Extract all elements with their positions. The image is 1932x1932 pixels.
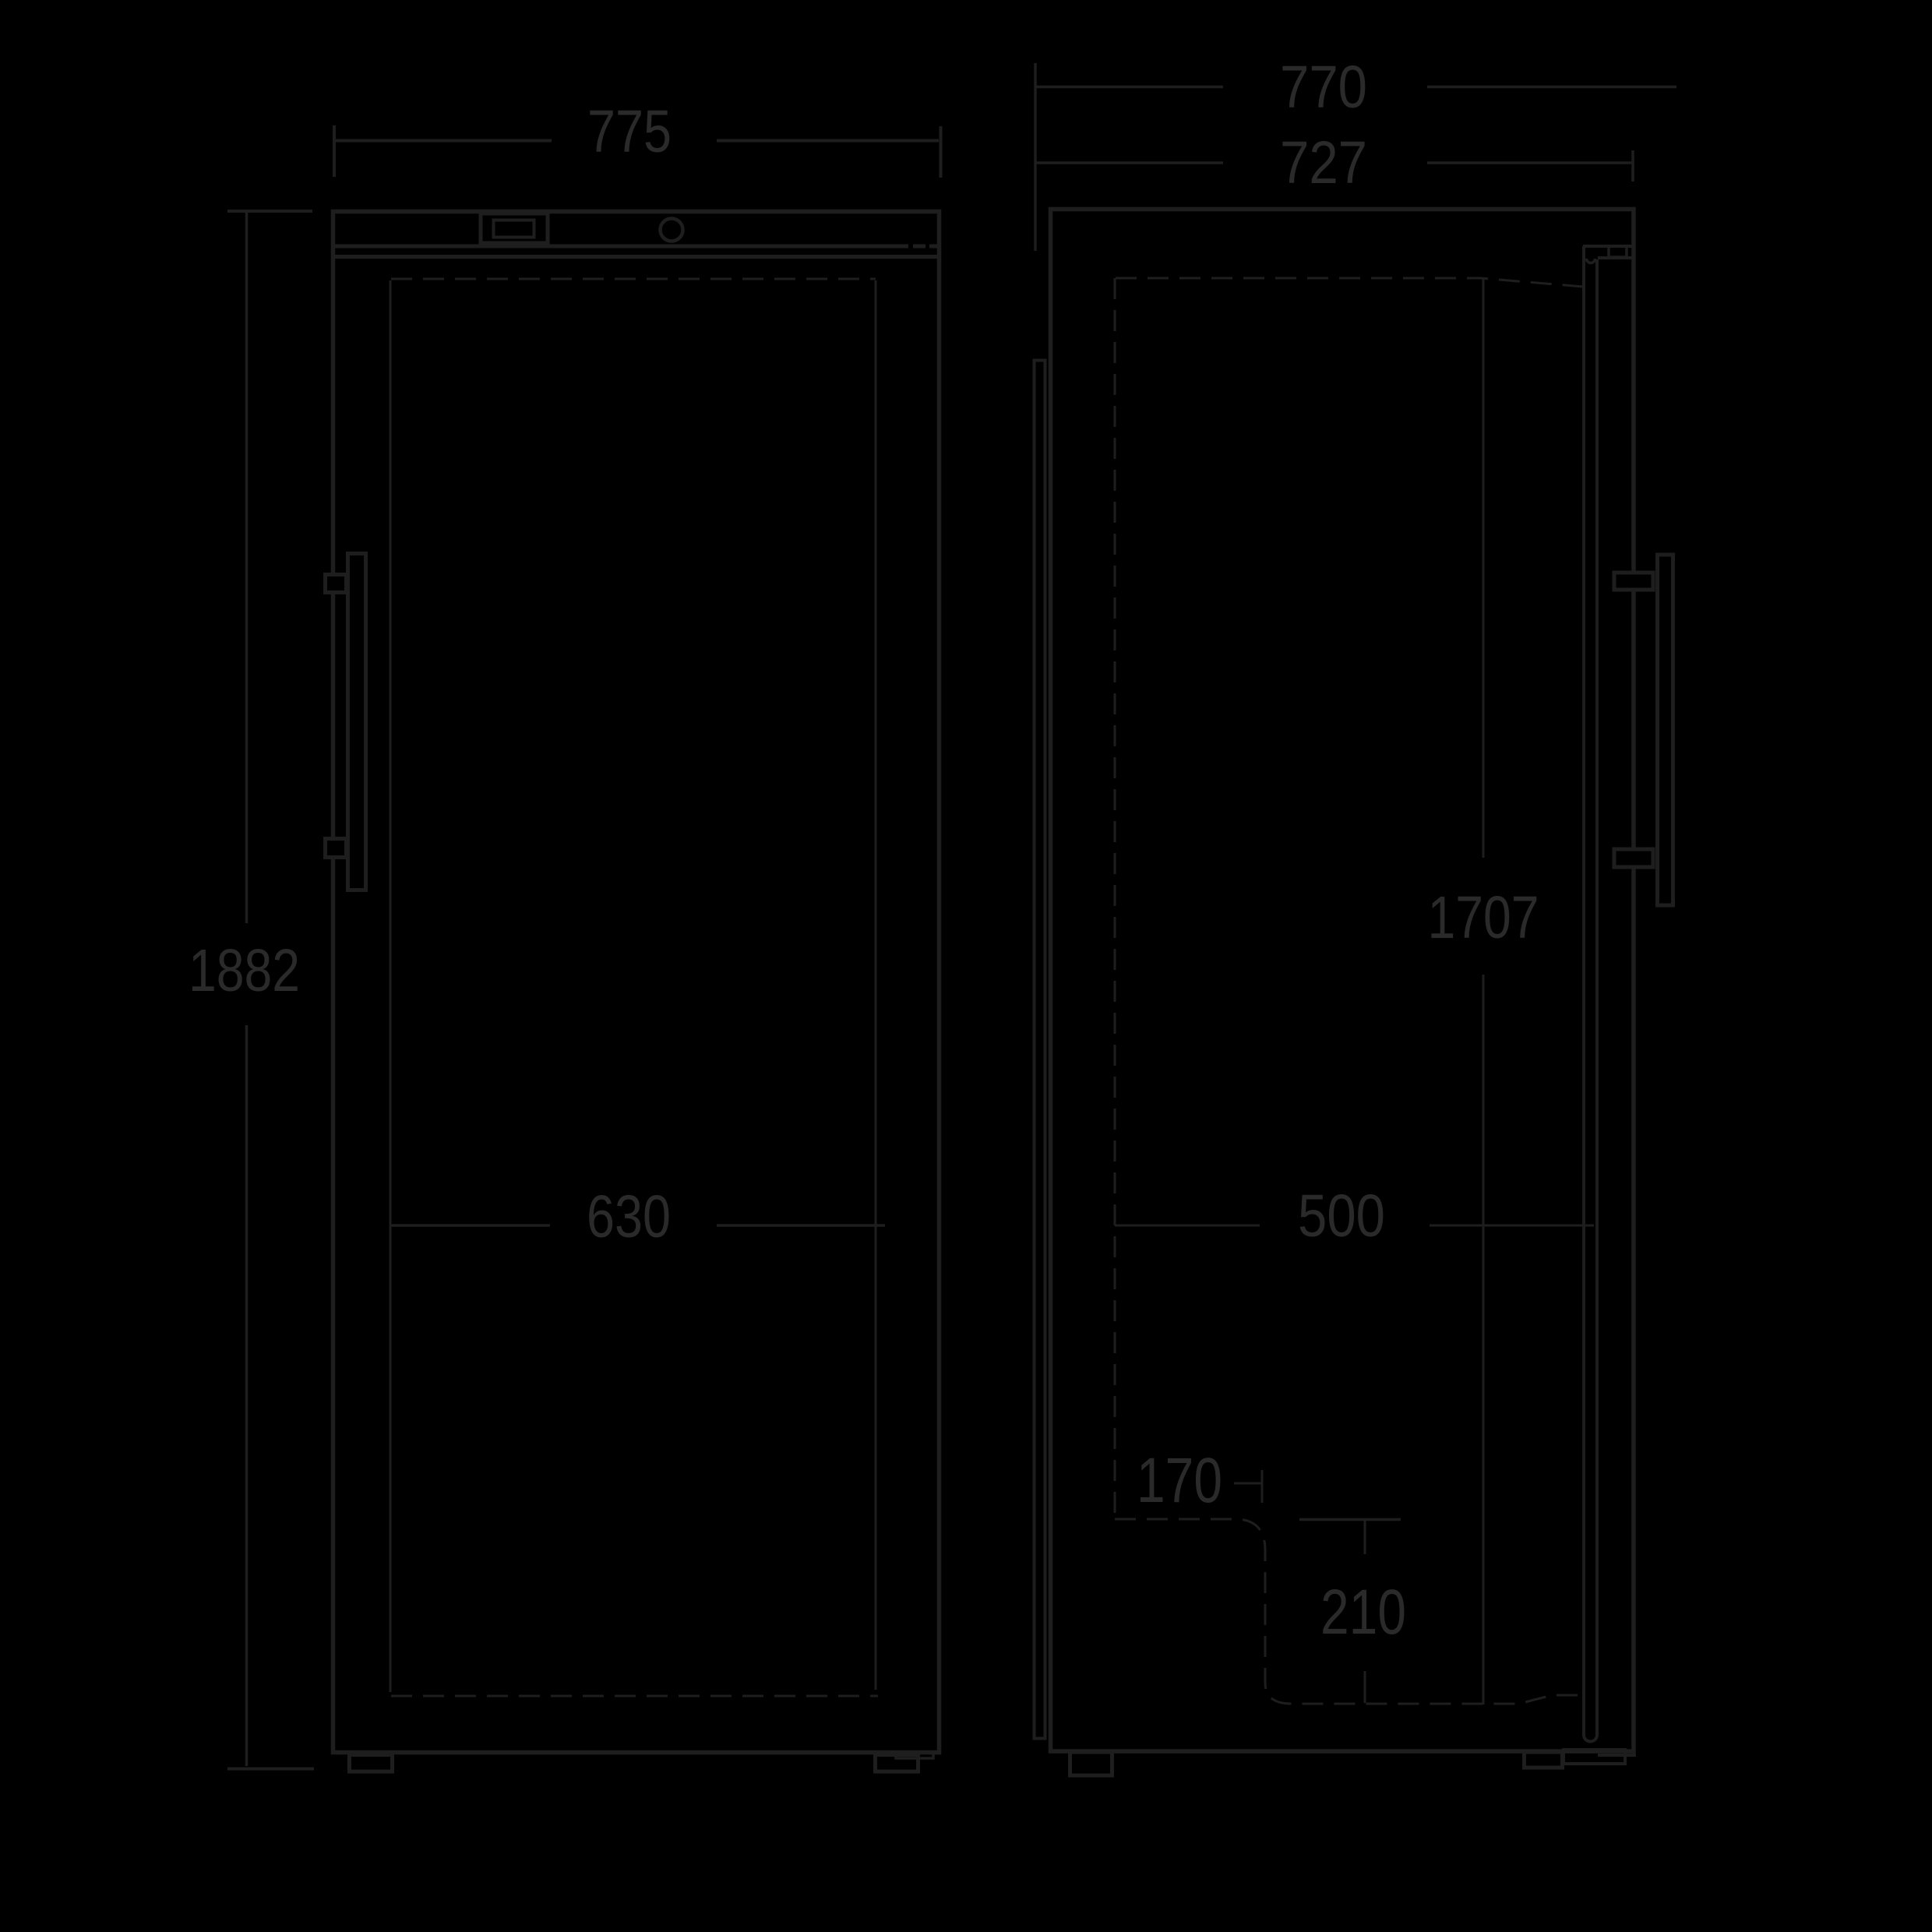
svg-text:1707: 1707: [1428, 884, 1539, 951]
svg-text:775: 775: [587, 98, 672, 165]
svg-text:770: 770: [1280, 54, 1367, 121]
svg-text:630: 630: [587, 1183, 671, 1250]
svg-text:170: 170: [1137, 1445, 1222, 1516]
svg-text:1882: 1882: [189, 937, 300, 1004]
svg-text:727: 727: [1280, 129, 1367, 196]
svg-text:500: 500: [1298, 1183, 1385, 1250]
svg-text:210: 210: [1320, 1577, 1406, 1648]
